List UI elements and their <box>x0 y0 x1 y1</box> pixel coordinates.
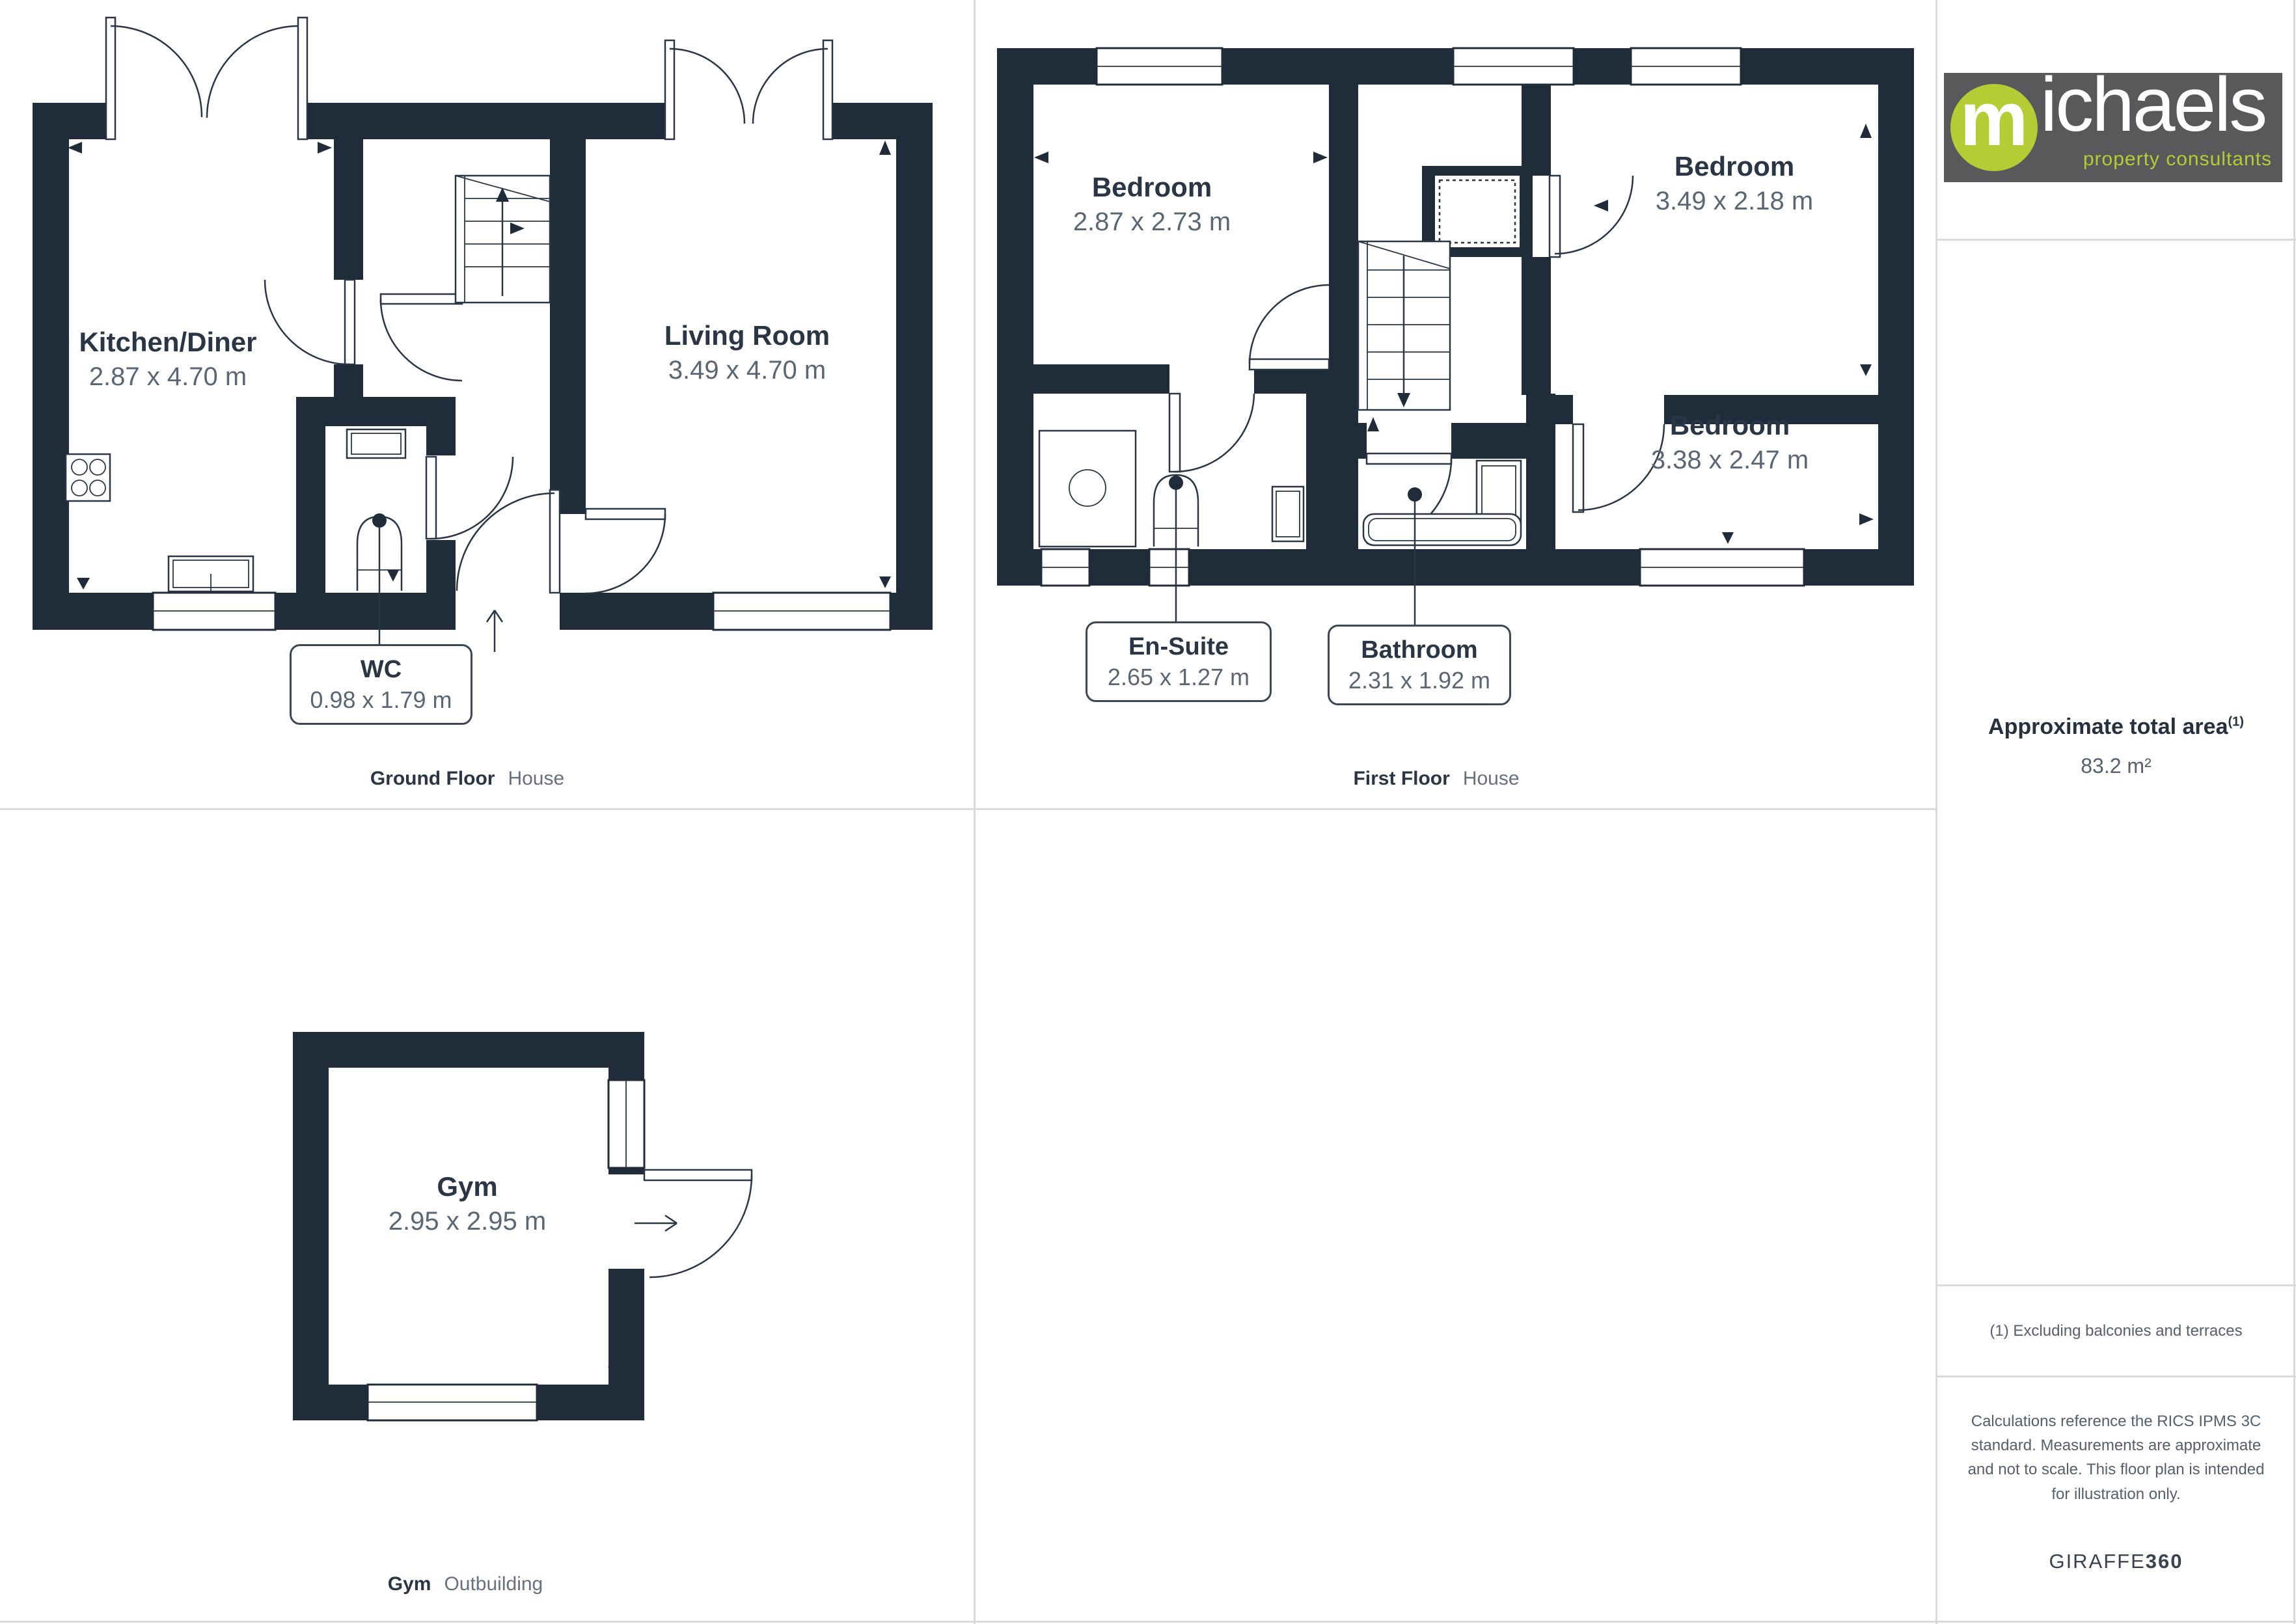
cupboard <box>1435 176 1520 247</box>
bathroom-fixtures <box>1363 461 1521 626</box>
giraffe360-brand: GIRAFFE360 <box>1936 1550 2296 1573</box>
caption-first-floor: First FloorHouse <box>1241 768 1632 790</box>
panel-divider-vertical-2 <box>1935 0 1937 1624</box>
room-name: Living Room <box>584 319 910 353</box>
footnote-text: (1) Excluding balconies and terraces <box>1936 1322 2296 1340</box>
callout-bathroom: Bathroom 2.31 x 1.92 m <box>1328 625 1511 705</box>
room-dims: 3.49 x 4.70 m <box>584 353 910 387</box>
kitchen-fixtures <box>66 454 253 591</box>
stairs-down-icon <box>1358 241 1450 410</box>
room-label-living-room: Living Room 3.49 x 4.70 m <box>584 319 910 387</box>
gym-windows <box>368 1080 644 1420</box>
logo-m-icon: m <box>1950 84 2038 171</box>
michaels-logo: m ichaels property consultants <box>1944 73 2282 182</box>
logo-name: ichaels <box>2040 56 2265 154</box>
room-name: En-Suite <box>1128 632 1229 662</box>
room-label-bedroom-3: Bedroom 3.38 x 2.47 m <box>1567 409 1893 477</box>
floor-name: First Floor <box>1353 768 1449 789</box>
room-name: Kitchen/Diner <box>5 325 331 360</box>
ground-floor-windows <box>153 593 890 630</box>
room-dims: 2.65 x 1.27 m <box>1108 663 1250 691</box>
room-dims: 3.49 x 2.18 m <box>1572 184 1897 218</box>
room-name: Bedroom <box>989 170 1315 205</box>
disclaimer-text: Calculations reference the RICS IPMS 3C … <box>1959 1409 2273 1506</box>
room-name: Bedroom <box>1572 150 1897 184</box>
room-label-bedroom-1: Bedroom 2.87 x 2.73 m <box>989 170 1315 239</box>
room-name: Bathroom <box>1361 636 1477 666</box>
building-name: House <box>1463 768 1520 789</box>
building-name: Outbuilding <box>444 1573 543 1595</box>
sidebar-divider-3 <box>1936 1375 2296 1377</box>
gym-door <box>635 1170 752 1277</box>
page-right-border <box>2293 0 2295 1624</box>
panel-divider-horizontal <box>0 808 1936 810</box>
panel-divider-vertical-1 <box>974 0 976 1624</box>
room-dims: 3.38 x 2.47 m <box>1567 443 1893 477</box>
sidebar-divider-1 <box>1936 239 2296 241</box>
callout-wc: WC 0.98 x 1.79 m <box>290 644 472 725</box>
room-name: Gym <box>305 1170 630 1204</box>
footnote-marker: (1) <box>2228 715 2244 729</box>
floor-name: Ground Floor <box>370 768 495 789</box>
room-dims: 2.87 x 2.73 m <box>989 205 1315 239</box>
room-label-gym: Gym 2.95 x 2.95 m <box>305 1170 630 1238</box>
room-label-bedroom-2: Bedroom 3.49 x 2.18 m <box>1572 150 1897 218</box>
building-name: House <box>508 768 564 789</box>
callout-en-suite: En-Suite 2.65 x 1.27 m <box>1086 621 1272 702</box>
total-area-title-text: Approximate total area <box>1988 714 2228 739</box>
page-bottom-border <box>0 1621 2296 1623</box>
caption-ground-floor: Ground FloorHouse <box>272 768 663 790</box>
brand-name: GIRAFFE <box>2049 1550 2145 1573</box>
room-dims: 2.95 x 2.95 m <box>305 1204 630 1238</box>
room-dims: 2.31 x 1.92 m <box>1348 666 1490 694</box>
caption-gym: GymOutbuilding <box>270 1573 661 1595</box>
logo-tagline: property consultants <box>2083 148 2272 170</box>
brand-suffix: 360 <box>2146 1550 2183 1573</box>
room-dims: 0.98 x 1.79 m <box>310 686 452 714</box>
room-dims: 2.87 x 4.70 m <box>5 360 331 394</box>
room-name: Bedroom <box>1567 409 1893 443</box>
total-area-title: Approximate total area(1) <box>1936 714 2296 740</box>
ground-floor-plan <box>0 0 974 809</box>
sidebar-divider-2 <box>1936 1284 2296 1286</box>
logo-mark-letter: m <box>1960 75 2029 163</box>
total-area-block: Approximate total area(1) 83.2 m² <box>1936 714 2296 778</box>
floor-name: Gym <box>388 1573 431 1595</box>
room-label-kitchen-diner: Kitchen/Diner 2.87 x 4.70 m <box>5 325 331 394</box>
total-area-value: 83.2 m² <box>1936 754 2296 778</box>
room-name: WC <box>361 655 402 685</box>
floorplan-page: Kitchen/Diner 2.87 x 4.70 m Living Room … <box>0 0 2296 1624</box>
stairs-up-icon <box>456 176 550 303</box>
